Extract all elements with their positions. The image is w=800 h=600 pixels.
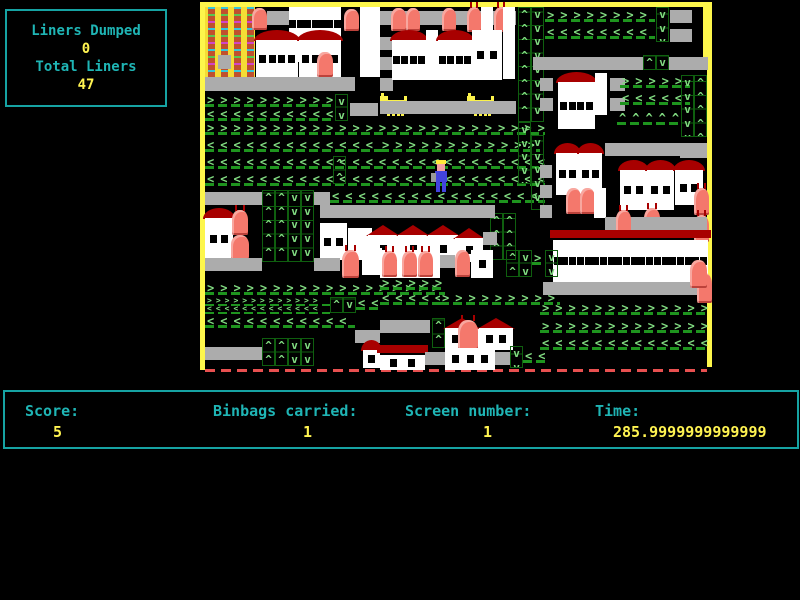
window	[677, 257, 684, 265]
binbag	[252, 8, 267, 30]
road-segment	[440, 255, 455, 268]
player-body	[435, 171, 447, 182]
window	[651, 186, 658, 194]
chevron-row-left: <<<<<<<<<<<<<<<<<<<<<<<<<<	[205, 173, 545, 186]
playfield[interactable]: ^ ^ ^ ^ ^ ^ ^ ^v v v v v v v v>>>>>>>><<…	[200, 2, 712, 373]
window	[569, 257, 576, 265]
window	[624, 186, 631, 194]
chevron-row-left: <<	[523, 350, 548, 363]
binbag	[406, 8, 420, 31]
house	[205, 208, 233, 260]
road-segment	[605, 143, 707, 156]
player-leg	[436, 182, 440, 192]
window	[477, 51, 484, 59]
window	[304, 20, 311, 28]
binbag	[391, 8, 406, 31]
screen-number-value: 1	[483, 423, 492, 441]
house-body	[553, 240, 708, 282]
window	[447, 56, 454, 64]
road-segment	[205, 77, 355, 91]
window	[334, 20, 341, 28]
window	[486, 335, 493, 343]
house-body	[620, 170, 647, 210]
window	[401, 56, 408, 64]
chevron-row-right: >>>>>>>>>>>>>>>>>>>>>>>>>>	[205, 122, 545, 135]
chevron-column-down: v v	[288, 338, 301, 366]
window	[569, 170, 576, 178]
road-segment	[533, 57, 643, 70]
window	[336, 238, 343, 246]
window	[638, 257, 645, 265]
chevron-column-up: ^ ^	[333, 156, 346, 184]
window	[577, 102, 584, 110]
window	[324, 238, 331, 246]
road-segment	[320, 205, 495, 218]
window	[312, 20, 319, 28]
roof-flat	[377, 345, 428, 353]
chevron-column-up: ^ ^	[506, 250, 519, 277]
binbag	[232, 210, 248, 235]
chevron-row-right: >>>>>>>>	[545, 9, 655, 22]
window	[210, 235, 217, 243]
road-segment	[350, 103, 378, 116]
window	[600, 257, 607, 265]
chevron-column-up: ^ ^ ^ ^ ^	[262, 190, 275, 262]
binbag-tie	[497, 2, 499, 8]
window	[577, 257, 584, 265]
binbag	[458, 320, 478, 350]
building-windows	[479, 328, 513, 350]
window	[408, 359, 415, 367]
building	[362, 248, 382, 275]
window	[490, 51, 497, 59]
window	[479, 260, 486, 268]
window	[586, 102, 593, 110]
binbag-tie	[405, 246, 407, 252]
binbag	[455, 250, 470, 277]
chevron-column-down: v v	[545, 250, 558, 277]
liners-info-box: Liners Dumped 0 Total Liners 47	[5, 9, 167, 107]
chevron-column-down: v	[343, 297, 356, 313]
window	[269, 55, 276, 63]
chevron-column-up: ^ ^	[262, 338, 275, 366]
chevron-column-down: v v	[519, 250, 532, 277]
chevron-row-right: >>>>>	[620, 75, 690, 88]
window	[278, 55, 285, 63]
window	[631, 257, 638, 265]
window	[669, 257, 676, 265]
binbag	[442, 8, 456, 31]
window	[319, 20, 326, 28]
building-windows	[647, 170, 674, 210]
road-segment	[540, 185, 552, 198]
chevron-column-down: v	[656, 55, 669, 70]
binbag	[418, 251, 433, 277]
chevron-row-right: >>>>>>>>>>	[205, 94, 335, 107]
window	[410, 56, 417, 64]
window	[221, 235, 228, 243]
liners-dumped-value: 0	[82, 41, 90, 57]
status-bar: Score: 5 Binbags carried: 1 Screen numbe…	[3, 390, 799, 449]
building-windows	[472, 30, 502, 80]
chevron-row-left: <<<<<	[620, 92, 690, 105]
building-windows	[392, 40, 426, 80]
chevron-row-right: >>>>>>>>>>>>>	[540, 320, 708, 333]
window	[467, 355, 474, 363]
binbag-tie	[697, 210, 699, 216]
road-segment	[380, 101, 516, 114]
binbag	[231, 235, 249, 260]
roof-flat	[550, 230, 711, 238]
chevron-column-up: ^	[330, 297, 343, 313]
window	[440, 245, 447, 253]
chevron-row-right: >>>>>	[380, 277, 442, 290]
window	[561, 257, 568, 265]
building	[445, 348, 495, 370]
chevron-row-left: <<<<<<<<	[545, 26, 655, 39]
road-segment	[425, 352, 445, 365]
window	[439, 56, 446, 64]
house-body	[647, 170, 674, 210]
binbag	[580, 188, 595, 214]
house-body	[256, 40, 298, 78]
window	[559, 170, 566, 178]
total-liners-value: 47	[78, 77, 95, 93]
carried-binbag	[431, 173, 436, 182]
binbag	[317, 52, 333, 77]
building-windows	[256, 40, 298, 78]
window	[418, 56, 425, 64]
building	[595, 73, 607, 115]
building	[471, 250, 493, 278]
window	[456, 56, 463, 64]
chevron-column-down: v v v v v	[288, 190, 301, 262]
chevron-row-up: ^^^^^	[617, 112, 679, 125]
house	[558, 72, 595, 129]
chevron-column-up: ^	[643, 55, 656, 70]
road-segment	[218, 55, 231, 69]
chevron-row-left: <<<<<<<<<<<<<	[205, 139, 380, 152]
binbag-tie	[428, 246, 430, 252]
window	[288, 55, 295, 63]
binbag-tie	[704, 210, 706, 216]
chevron-row-left: <<<<<<<<<<<<<	[540, 337, 708, 350]
window	[585, 257, 592, 265]
house-body	[380, 355, 425, 370]
chevron-column-down: v v v v v	[301, 190, 314, 262]
chevron-row-left: <<<<<<<<<<<	[205, 315, 355, 328]
window	[592, 257, 599, 265]
window	[662, 257, 669, 265]
window	[368, 355, 375, 363]
window	[582, 170, 589, 178]
chevron-column-down: v v	[301, 338, 314, 366]
binbag	[342, 250, 359, 278]
window	[452, 355, 459, 363]
house-body	[392, 40, 426, 80]
chevron-row-right: >>>>>>>>>>>>>	[540, 302, 708, 315]
road-segment	[314, 192, 330, 205]
window	[592, 170, 599, 178]
road-segment	[669, 57, 708, 70]
window	[569, 102, 576, 110]
road-segment	[540, 78, 553, 91]
road-segment	[314, 258, 340, 271]
building-windows	[445, 348, 495, 370]
binbag	[402, 251, 417, 277]
binbag-tie	[704, 183, 706, 189]
binbag	[566, 188, 581, 214]
binbag-tie	[655, 203, 657, 209]
window	[393, 56, 400, 64]
building-windows	[380, 355, 425, 370]
binbag-tie	[392, 246, 394, 252]
window	[302, 55, 309, 63]
binbag-tie	[626, 205, 628, 211]
chevron-column-down: v v	[510, 346, 523, 368]
game-screen: Liners Dumped 0 Total Liners 47 ^ ^ ^ ^ …	[0, 0, 800, 600]
chevron-column-up: ^ ^	[275, 338, 288, 366]
window	[615, 257, 622, 265]
time-value: 285.9999999999999	[613, 423, 767, 441]
binbag-tie	[473, 315, 475, 321]
house	[479, 318, 513, 350]
chevron-row-left: <<<<<<<<<<<<<	[205, 305, 330, 314]
road-segment	[540, 165, 552, 178]
road-segment	[670, 29, 692, 42]
house-body	[205, 218, 233, 260]
chevron-column-up: ^ ^ ^ ^ ^	[275, 190, 288, 262]
building-windows	[471, 250, 493, 278]
chevron-row-right: >>>>>>>>>	[440, 292, 560, 305]
liners-dumped-label: Liners Dumped	[31, 23, 141, 39]
binbag	[467, 7, 481, 32]
binbag-tie	[476, 2, 478, 8]
window	[481, 355, 488, 363]
binbag-tie	[421, 246, 423, 252]
binbag-tie	[243, 205, 245, 211]
window	[560, 102, 567, 110]
road-segment	[670, 10, 692, 23]
road-segment	[543, 282, 700, 295]
house	[256, 30, 298, 78]
building	[472, 30, 502, 80]
window	[646, 257, 653, 265]
player-face	[437, 164, 445, 171]
house-body	[438, 40, 472, 80]
chevron-row-left: <<<<<<<<<<<<<<<<<<<<<<<<<<	[205, 156, 545, 169]
binbag-tie	[354, 245, 356, 251]
building-windows	[205, 218, 233, 260]
chevron-row-left: <<<<<	[380, 292, 440, 305]
building	[360, 7, 380, 77]
window	[680, 184, 687, 192]
chevron-row-right: >>>>>>>>>>>>	[380, 139, 540, 152]
building-windows	[553, 240, 708, 282]
chevron-column-down: v v v v v	[681, 75, 694, 137]
window	[499, 335, 506, 343]
total-liners-label: Total Liners	[35, 59, 136, 75]
house	[438, 30, 472, 80]
chevron-row-left: <<	[356, 297, 380, 310]
road-segment	[267, 11, 290, 25]
window	[464, 56, 471, 64]
road-segment	[540, 205, 552, 218]
building	[594, 188, 606, 218]
chevron-column-down: v v v	[656, 7, 669, 42]
chevron-row-right: >	[532, 252, 545, 265]
building-windows	[558, 82, 595, 129]
binbag-tie	[345, 245, 347, 251]
time-label: Time:	[595, 402, 640, 420]
window	[259, 55, 266, 63]
building-windows	[620, 170, 647, 210]
binbags-value: 1	[303, 423, 312, 441]
binbag	[382, 251, 397, 277]
binbag-tie	[385, 246, 387, 252]
window	[390, 359, 397, 367]
binbag-tie	[619, 205, 621, 211]
player-sprite	[433, 160, 449, 193]
window	[663, 186, 670, 194]
chevron-column-down: v v	[335, 94, 348, 121]
binbag-tie	[697, 183, 699, 189]
binbag-tie	[647, 203, 649, 209]
house	[380, 345, 425, 370]
chevron-row-left: <<<<<<<<<<	[205, 108, 335, 121]
road-segment	[205, 347, 262, 360]
house	[392, 30, 426, 80]
house	[647, 160, 674, 210]
window	[654, 257, 661, 265]
binbags-label: Binbags carried:	[213, 402, 358, 420]
road-segment	[205, 192, 262, 205]
screen-number-label: Screen number:	[405, 402, 531, 420]
road-segment	[495, 352, 510, 365]
house	[553, 230, 708, 282]
binbag-tie	[461, 315, 463, 321]
building-windows	[438, 40, 472, 80]
road-segment	[205, 258, 262, 271]
playfield-border-top	[200, 2, 712, 7]
house-body	[479, 328, 513, 350]
chevron-column-up: ^ ^ ^ ^ ^ ^ ^ ^	[518, 7, 531, 122]
chevron-column-up: ^ ^ ^ ^ ^	[694, 75, 707, 137]
house-body	[558, 82, 595, 129]
window	[623, 257, 630, 265]
window	[326, 20, 333, 28]
chevron-column-down: v v v v v	[518, 122, 531, 184]
road-segment	[540, 98, 553, 111]
window	[289, 20, 296, 28]
binbag-tie	[470, 2, 472, 8]
window	[608, 257, 615, 265]
binbag	[344, 9, 359, 31]
binbag-tie	[235, 205, 237, 211]
road-segment	[380, 320, 430, 333]
window	[297, 20, 304, 28]
road-segment	[483, 232, 497, 245]
window	[636, 186, 643, 194]
score-label: Score:	[25, 402, 79, 420]
house	[620, 160, 647, 210]
player-leg	[442, 182, 446, 192]
building	[503, 7, 515, 79]
playfield-border-right-nub	[703, 2, 712, 65]
binbag	[690, 260, 707, 288]
score-value: 5	[53, 423, 62, 441]
binbag-tie	[412, 246, 414, 252]
